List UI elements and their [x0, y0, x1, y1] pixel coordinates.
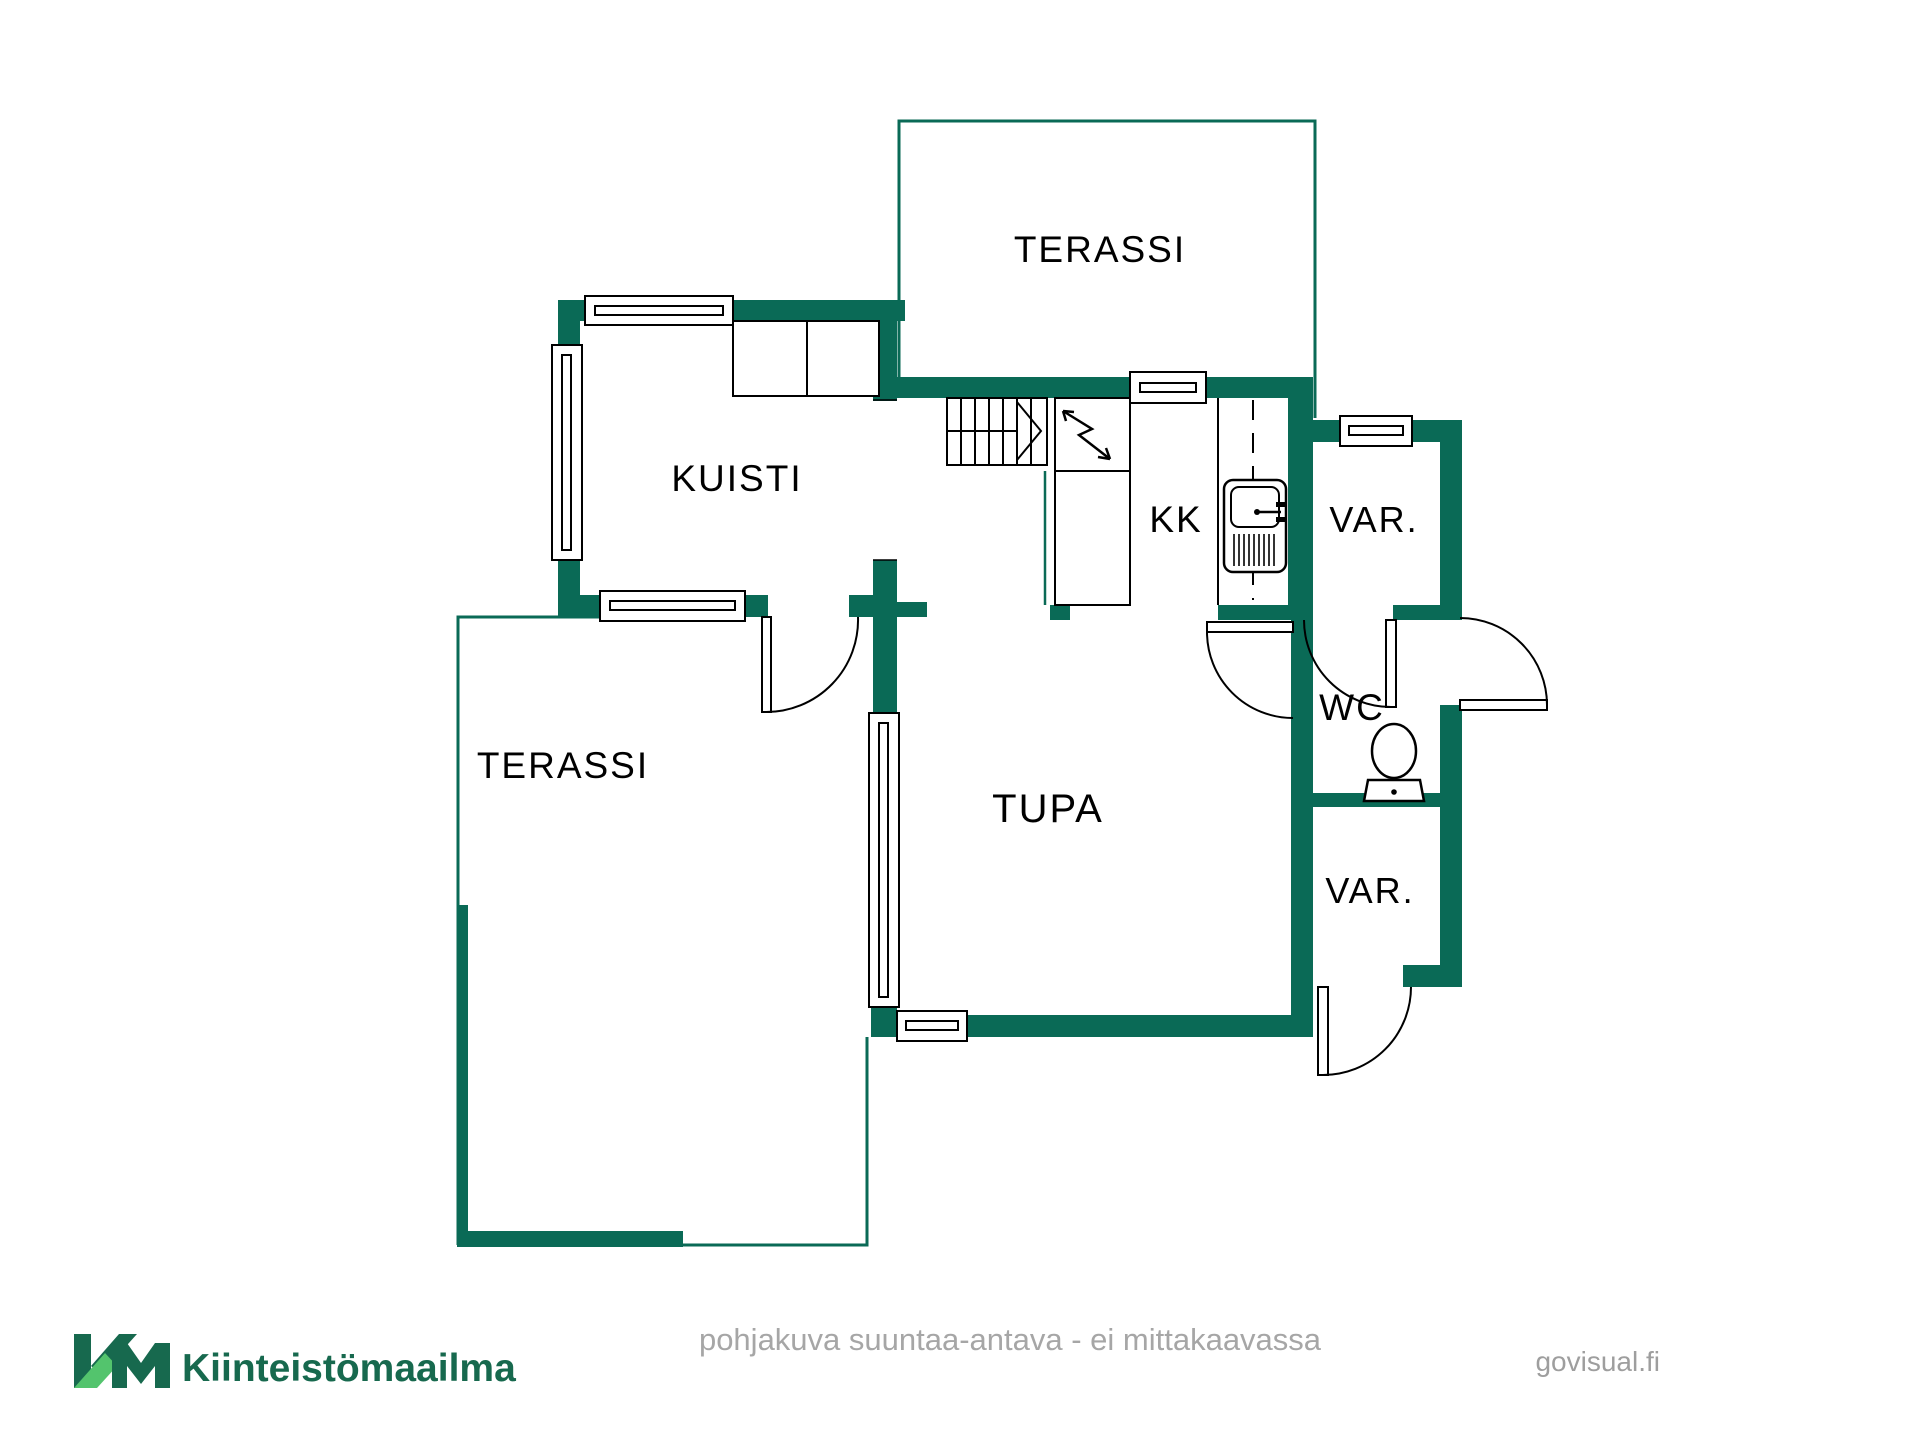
room-label-terrace-left: TERASSI [477, 745, 649, 786]
window-symbol-kuisti-bottom [600, 591, 745, 621]
porch-closets [733, 321, 879, 396]
window-symbol-kuisti-top [585, 296, 733, 325]
door-kuisti-terrace [762, 617, 858, 712]
kitchen-counter [1218, 398, 1286, 605]
terrace-left-outline [458, 617, 867, 1245]
logo-company-name: Kiinteistömaailma [182, 1347, 516, 1390]
electrical-panel [1055, 398, 1130, 605]
window-symbol-storage-top [1340, 416, 1412, 446]
window-symbol-kuisti-left [552, 345, 582, 560]
room-label-storage-bottom: VAR. [1325, 870, 1414, 911]
room-label-living-room: TUPA [992, 787, 1104, 831]
stairs-icon [947, 398, 1047, 465]
passage-jambs [873, 400, 897, 560]
kitchen-sink-icon [1224, 480, 1286, 572]
credit-text: govisual.fi [1535, 1346, 1660, 1377]
door-storage-bottom [1318, 987, 1411, 1075]
km-logo-icon [74, 1334, 170, 1388]
door-tupa-hall [1207, 622, 1293, 718]
door-entrance [1460, 618, 1547, 710]
disclaimer-text: pohjakuva suuntaa-antava - ei mittakaava… [699, 1322, 1322, 1357]
room-label-terrace-top: TERASSI [1014, 229, 1186, 270]
room-label-storage-top: VAR. [1329, 499, 1418, 540]
toilet-icon [1364, 724, 1424, 801]
room-label-kitchenette: KK [1149, 499, 1202, 540]
room-label-wc: WC [1319, 687, 1385, 728]
floorplan-drawing: TERASSI KUISTI TERASSI TUPA KK VAR. WC V… [0, 0, 1920, 1430]
floorplan-page: TERASSI KUISTI TERASSI TUPA KK VAR. WC V… [0, 0, 1920, 1430]
terrace-left-railing [457, 905, 683, 1247]
window-symbol-tupa-bottom [897, 1011, 967, 1041]
room-label-porch: KUISTI [671, 458, 802, 499]
window-symbol-tupa-left [869, 713, 899, 1007]
window-symbol-top-wall [1130, 372, 1206, 403]
